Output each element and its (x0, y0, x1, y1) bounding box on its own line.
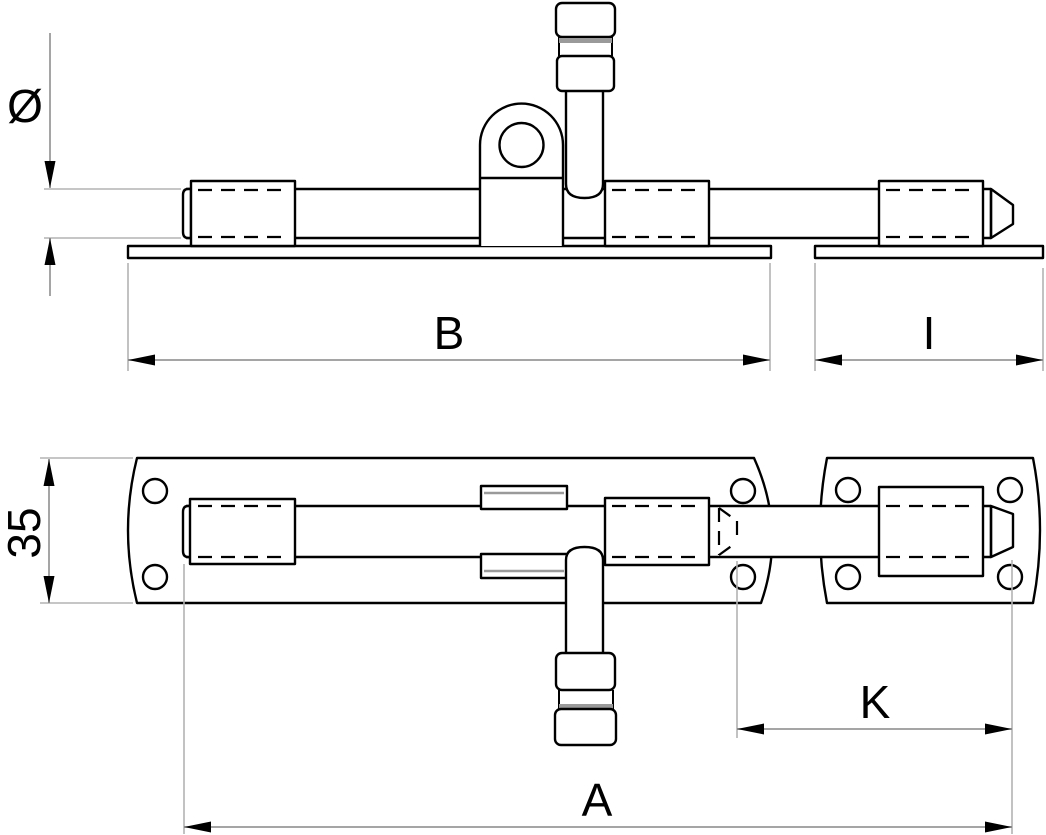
bolt-technical-drawing: Ø B I 35 K A (0, 0, 1046, 835)
handle-side (556, 3, 615, 198)
diameter-label: Ø (7, 80, 43, 132)
diameter-extension-lines (44, 189, 181, 238)
bolt-travel-label: K (860, 676, 891, 728)
dimension-35: 35 (0, 458, 133, 603)
handle-shaft-side (566, 91, 603, 198)
right-guide-side (605, 181, 709, 246)
side-elevation-view (44, 3, 1043, 258)
padlock-staple (480, 104, 563, 246)
left-guide-plan (190, 499, 295, 564)
staple-hole (500, 123, 544, 167)
staple-bracket-top (481, 486, 567, 509)
keeper-guide-plan (879, 487, 983, 576)
handle-knob-plan (555, 653, 616, 745)
technical-drawing-page: Ø B I 35 K A (0, 0, 1046, 835)
keeper-guide-side (879, 181, 983, 246)
keeper-plate-length-label: I (923, 307, 936, 359)
dimension-b: B (128, 263, 770, 371)
staple-bracket-bottom (481, 554, 567, 578)
dimension-diameter: Ø (7, 33, 55, 296)
bolt-tip-plan (991, 506, 1013, 557)
plan-view (128, 458, 1040, 745)
handle-shaft-plan (566, 547, 603, 653)
main-plate-side (128, 246, 771, 258)
bolt-tip-side (991, 189, 1013, 238)
handle-knob-side (556, 3, 615, 91)
dimension-i: I (815, 263, 1043, 371)
right-guide-plan (605, 498, 709, 565)
left-guide-side (191, 181, 295, 246)
main-plate-length-label: B (434, 307, 465, 359)
plate-width-label: 35 (0, 507, 50, 558)
overall-length-label: A (582, 774, 613, 826)
keeper-plate-side (815, 246, 1043, 258)
